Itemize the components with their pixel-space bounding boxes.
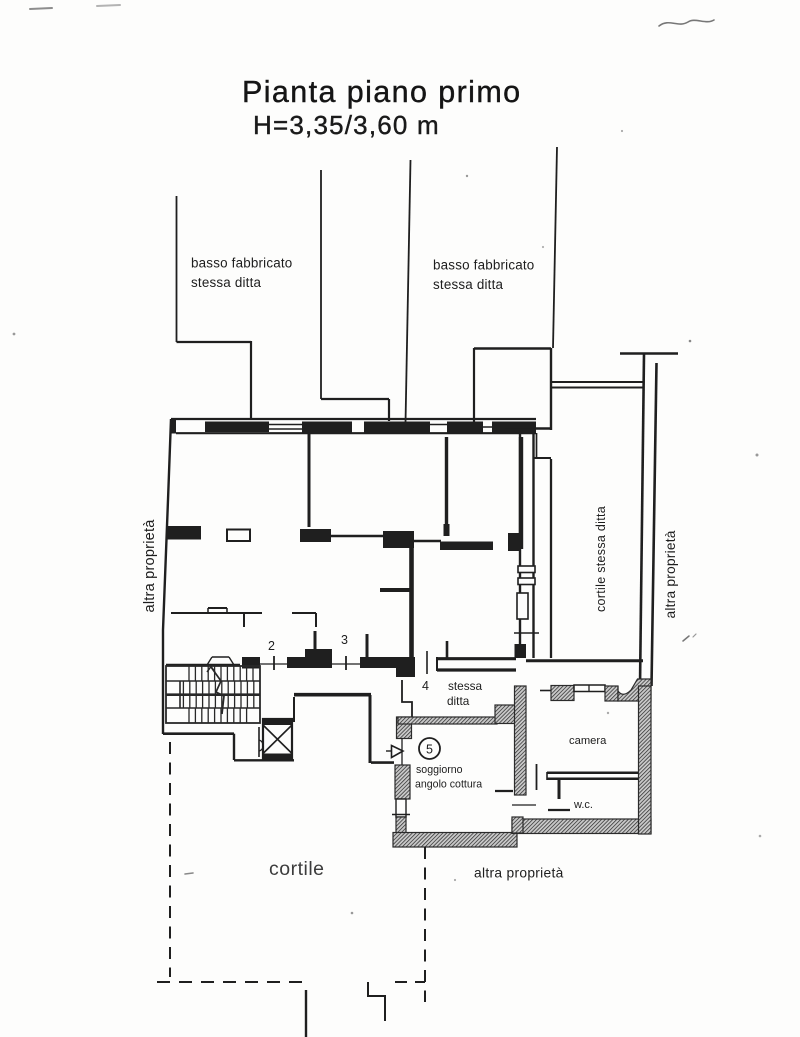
svg-text:camera: camera [569, 735, 607, 747]
svg-text:basso fabbricato: basso fabbricato [191, 256, 292, 271]
svg-text:cortile: cortile [269, 858, 325, 880]
svg-text:stessa ditta: stessa ditta [191, 275, 261, 290]
svg-text:altra proprietà: altra proprietà [142, 519, 158, 613]
svg-text:stessa: stessa [448, 679, 483, 693]
svg-text:2: 2 [268, 639, 275, 653]
svg-text:ditta: ditta [447, 694, 470, 708]
svg-text:4: 4 [422, 679, 429, 693]
svg-text:H=3,35/3,60 m: H=3,35/3,60 m [253, 110, 440, 140]
svg-text:soggiorno: soggiorno [416, 764, 463, 776]
svg-text:w.c.: w.c. [573, 799, 593, 811]
svg-text:angolo cottura: angolo cottura [415, 779, 482, 791]
svg-text:3: 3 [341, 633, 348, 647]
svg-text:basso fabbricato: basso fabbricato [433, 258, 534, 273]
svg-text:altra proprietà: altra proprietà [474, 866, 564, 881]
svg-text:stessa ditta: stessa ditta [433, 277, 503, 292]
svg-text:cortile stessa ditta: cortile stessa ditta [594, 506, 608, 612]
svg-text:5: 5 [426, 743, 433, 757]
svg-text:Pianta piano primo: Pianta piano primo [242, 75, 522, 109]
svg-text:altra proprietà: altra proprietà [663, 530, 678, 618]
